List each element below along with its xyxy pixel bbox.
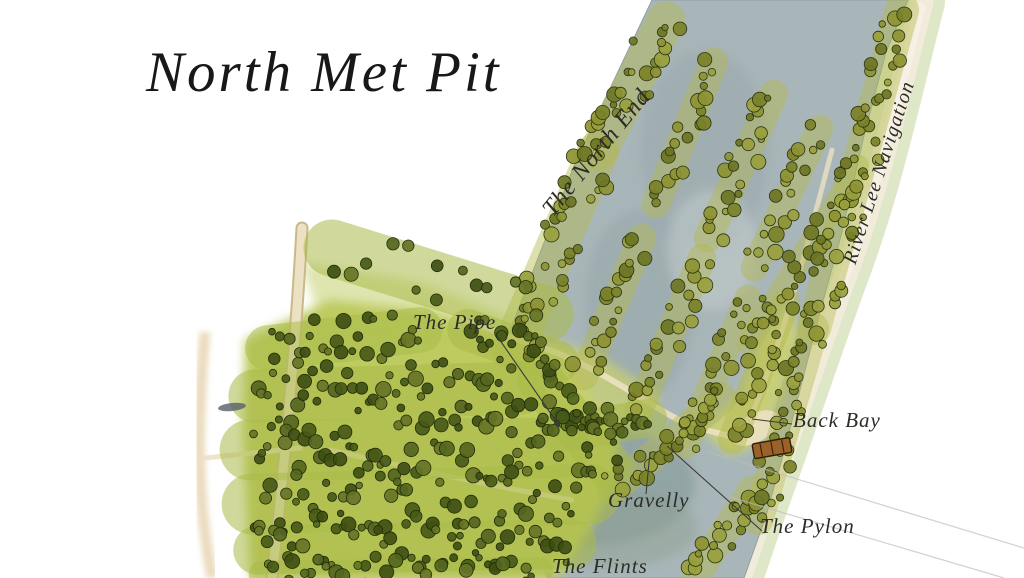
label-the-pylon: The Pylon (760, 514, 855, 539)
map-stage: North Met Pit The North End River Lee Na… (0, 0, 1024, 578)
label-the-flints: The Flints (552, 554, 648, 578)
map-title: North Met Pit (146, 40, 502, 105)
label-back-bay: Back Bay (793, 408, 881, 433)
label-the-pipe: The Pipe (413, 310, 496, 335)
label-gravelly: Gravelly (608, 488, 689, 513)
